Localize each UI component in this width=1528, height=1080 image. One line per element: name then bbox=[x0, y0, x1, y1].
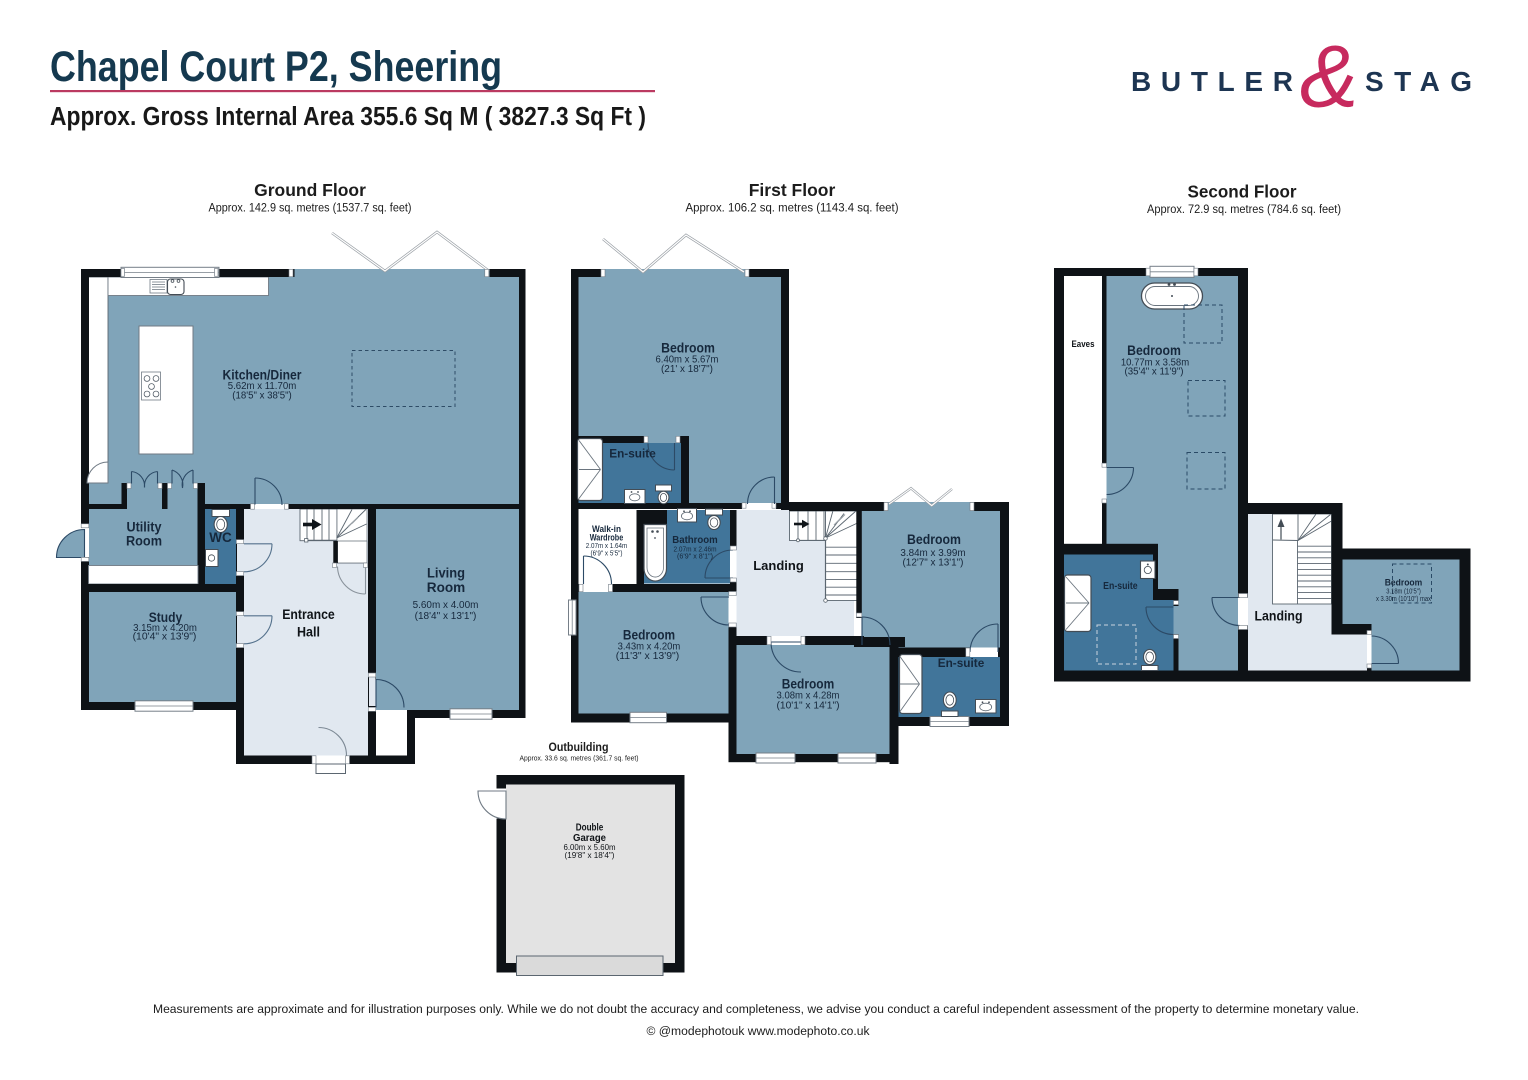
svg-text:Room: Room bbox=[126, 534, 162, 549]
svg-text:(19'8" x 18'4"): (19'8" x 18'4") bbox=[565, 851, 615, 860]
svg-text:(12'7" x 13'1"): (12'7" x 13'1") bbox=[903, 558, 964, 569]
svg-text:Bedroom: Bedroom bbox=[907, 532, 961, 547]
svg-text:Hall: Hall bbox=[297, 625, 320, 640]
svg-text:3.18m (10'5"): 3.18m (10'5") bbox=[1386, 589, 1421, 596]
svg-text:(10'4" x 13'9"): (10'4" x 13'9") bbox=[133, 632, 197, 643]
svg-text:Living: Living bbox=[427, 565, 465, 580]
svg-text:Landing: Landing bbox=[753, 558, 804, 573]
svg-text:WC: WC bbox=[209, 530, 232, 545]
svg-text:Room: Room bbox=[427, 580, 466, 595]
svg-text:&: & bbox=[1300, 27, 1359, 126]
svg-text:Outbuilding: Outbuilding bbox=[549, 740, 609, 754]
svg-text:Ground Floor: Ground Floor bbox=[254, 180, 366, 200]
svg-text:© @modephotouk www.modephoto.c: © @modephotouk www.modephoto.co.uk bbox=[647, 1024, 871, 1038]
svg-text:Bedroom: Bedroom bbox=[661, 340, 715, 355]
svg-text:(18'5" x 38'5"): (18'5" x 38'5") bbox=[232, 390, 292, 401]
svg-text:(10'1" x 14'1"): (10'1" x 14'1") bbox=[777, 700, 840, 711]
svg-text:Approx. Gross Internal Area 3: Approx. Gross Internal Area 355.6 Sq M (… bbox=[50, 103, 646, 131]
svg-text:Bedroom: Bedroom bbox=[1127, 343, 1181, 358]
svg-text:Bedroom: Bedroom bbox=[1385, 578, 1423, 588]
svg-text:(21' x 18'7"): (21' x 18'7") bbox=[661, 364, 713, 375]
svg-text:Chapel Court P2, Sheering: Chapel Court P2, Sheering bbox=[50, 43, 502, 91]
svg-text:Measurements are approximate a: Measurements are approximate and for ill… bbox=[153, 1002, 1359, 1016]
svg-text:Utility: Utility bbox=[127, 520, 162, 535]
svg-text:Approx. 33.6 sq. metres (361.7: Approx. 33.6 sq. metres (361.7 sq. feet) bbox=[520, 754, 639, 763]
svg-text:(35'4" x 11'9"): (35'4" x 11'9") bbox=[1125, 367, 1184, 378]
svg-text:En-suite: En-suite bbox=[938, 656, 985, 670]
svg-text:Entrance: Entrance bbox=[282, 607, 335, 622]
svg-text:Second Floor: Second Floor bbox=[1188, 182, 1297, 202]
svg-text:Approx. 142.9 sq. metres (1537: Approx. 142.9 sq. metres (1537.7 sq. fee… bbox=[209, 203, 412, 215]
svg-text:Eaves: Eaves bbox=[1072, 339, 1095, 350]
svg-text:5.60m x 4.00m: 5.60m x 4.00m bbox=[413, 600, 479, 611]
svg-text:x 3.30m (10'10") max: x 3.30m (10'10") max bbox=[1376, 596, 1431, 603]
svg-text:Landing: Landing bbox=[1255, 609, 1303, 624]
svg-text:(11'3" x 13'9"): (11'3" x 13'9") bbox=[616, 651, 679, 662]
svg-text:En-suite: En-suite bbox=[1103, 581, 1138, 592]
svg-text:First Floor: First Floor bbox=[749, 180, 836, 200]
svg-text:En-suite: En-suite bbox=[609, 447, 656, 461]
svg-text:Approx. 106.2 sq. metres (1143: Approx. 106.2 sq. metres (1143.4 sq. fee… bbox=[686, 203, 899, 215]
svg-text:Wardrobe: Wardrobe bbox=[590, 532, 624, 542]
svg-text:Approx. 72.9 sq. metres (784.6: Approx. 72.9 sq. metres (784.6 sq. feet) bbox=[1147, 204, 1341, 216]
svg-text:(6'9" x 5'5"): (6'9" x 5'5") bbox=[591, 550, 623, 557]
svg-text:(6'9" x 8'1"): (6'9" x 8'1") bbox=[677, 551, 713, 560]
svg-text:Bedroom: Bedroom bbox=[623, 627, 675, 642]
svg-text:Bedroom: Bedroom bbox=[782, 677, 835, 692]
svg-text:(18'4" x 13'1"): (18'4" x 13'1") bbox=[415, 611, 477, 622]
svg-text:2.07m x 1.64m: 2.07m x 1.64m bbox=[586, 543, 628, 550]
